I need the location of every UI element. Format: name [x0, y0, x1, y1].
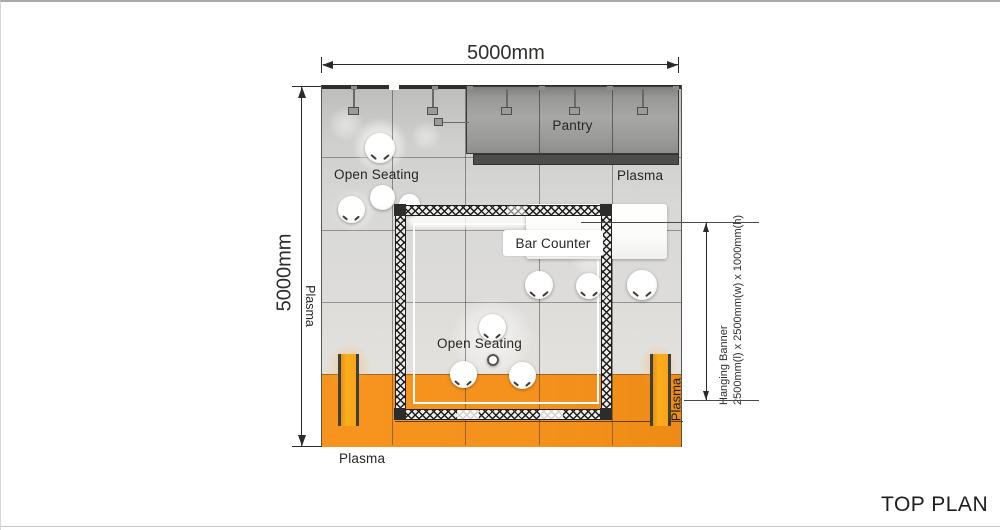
hanging-banner-annotation: Hanging Banner 2500mm(l) x 2500mm(w) x 1…	[718, 205, 746, 405]
hanging-light-icon	[348, 107, 359, 115]
light-stem	[642, 89, 644, 108]
chair	[509, 362, 536, 389]
left-dimension-label: 5000mm	[274, 233, 297, 313]
hanging-light-icon	[501, 107, 512, 115]
arrowhead-up-icon	[298, 87, 306, 98]
truss-corner	[394, 408, 406, 420]
arrowhead-left-icon	[322, 61, 333, 69]
light-stem	[506, 89, 508, 108]
truss-frame-top	[395, 205, 612, 216]
wall-tab	[539, 86, 545, 90]
hanging-banner-line1: Hanging Banner	[718, 205, 732, 405]
wall-tab	[607, 86, 613, 90]
truss-highlight	[507, 206, 525, 215]
light-stem	[353, 89, 355, 108]
page-title: TOP PLAN	[881, 493, 988, 517]
hanging-light-icon	[434, 118, 443, 126]
banner-dimension-line	[706, 223, 707, 400]
cocktail-table	[487, 354, 499, 366]
open-seating-top-label: Open Seating	[334, 167, 419, 182]
truss-highlight	[457, 410, 479, 419]
banner-extension-top	[581, 222, 759, 223]
floor-seam-line	[395, 421, 683, 422]
top-dimension-tick-right	[678, 57, 679, 73]
plasma-left-label: Plasma	[303, 284, 317, 328]
left-dimension-tick-bottom	[292, 446, 321, 447]
plasma-top-right-label: Plasma	[617, 168, 663, 183]
chair	[450, 361, 477, 388]
bar-stool	[525, 271, 553, 299]
plasma-bottom-label: Plasma	[339, 451, 385, 466]
light-stem	[432, 89, 434, 108]
left-dimension-line	[301, 87, 302, 446]
footer-divider	[1, 526, 1000, 527]
round-table	[370, 185, 395, 210]
left-dimension-tick-top	[292, 86, 321, 87]
light-stem	[574, 89, 576, 108]
truss-corner	[600, 408, 612, 420]
hanging-light-icon	[569, 107, 580, 115]
top-dimension-label: 5000mm	[467, 42, 545, 65]
pantry-label: Pantry	[466, 118, 679, 133]
banner-extension-bottom	[684, 400, 759, 401]
chair	[338, 196, 365, 223]
bar-counter-label: Bar Counter	[516, 236, 591, 251]
bar-counter-label-box: Bar Counter	[503, 230, 603, 256]
bar-stool	[576, 273, 602, 299]
hanging-light-icon	[637, 107, 648, 115]
pantry-counter-front	[473, 154, 679, 165]
arrowhead-right-icon	[667, 61, 678, 69]
truss-frame-left	[395, 205, 406, 420]
arrowhead-down-icon	[703, 391, 709, 400]
truss-highlight	[540, 410, 563, 419]
bar-stool	[627, 270, 657, 300]
truss-frame-bottom	[395, 409, 612, 420]
wall-gap	[389, 85, 399, 90]
wall-tab	[673, 86, 679, 90]
truss-corner	[394, 204, 406, 216]
hanging-light-icon	[427, 107, 438, 115]
open-seating-center-label: Open Seating	[437, 336, 522, 351]
wall-tab	[467, 86, 473, 90]
hanging-banner-line2: 2500mm(l) x 2500mm(w) x 1000mm(h)	[732, 205, 746, 405]
plasma-right-label: Plasma	[669, 377, 684, 423]
plasma-screen-left	[338, 354, 359, 426]
round-table	[365, 133, 395, 163]
truss-corner	[600, 204, 612, 216]
arrowhead-down-icon	[298, 435, 306, 446]
arrowhead-up-icon	[703, 223, 709, 232]
top-plan-canvas: 5000mm 5000mm Plasma	[0, 0, 1000, 530]
